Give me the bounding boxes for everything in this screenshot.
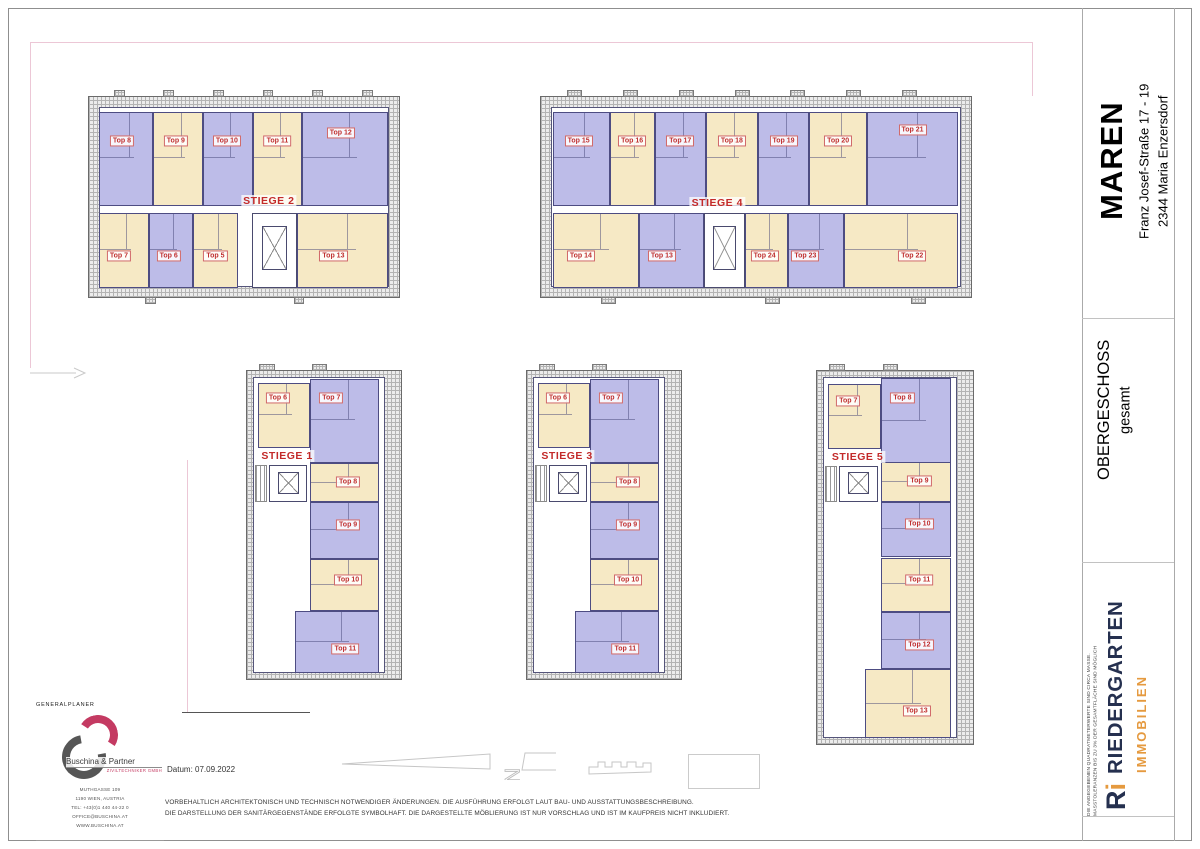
building-label: STIEGE 4 — [690, 197, 745, 209]
roof-stub — [829, 364, 845, 371]
unit-label: Top 16 — [618, 135, 646, 146]
unit-label: Top 7 — [599, 392, 623, 403]
unit-label: Top 8 — [616, 476, 640, 487]
titleblock-divider-1 — [1082, 318, 1174, 319]
roof-stub — [163, 90, 174, 97]
unit-top-21: Top 21 — [867, 112, 958, 206]
unit-label: Top 10 — [213, 135, 241, 146]
drawing-sheet: N Top 8Top 9Top 10Top 11Top 12Top 7Top 6… — [0, 0, 1200, 849]
unit-top-6: Top 6 — [258, 383, 310, 448]
unit-top-8: Top 8 — [590, 463, 659, 502]
unit-top-6: Top 6 — [149, 213, 194, 288]
unit-label: Top 24 — [751, 251, 779, 262]
roof-stub — [567, 90, 582, 97]
unit-label: Top 21 — [898, 124, 926, 135]
unit-top-10: Top 10 — [590, 559, 659, 611]
unit-top-9: Top 9 — [590, 502, 659, 559]
planner-address: MUTHGASSE 109 1190 WIEN, AUSTRIA TEL: +4… — [44, 786, 156, 831]
unit-top-23: Top 23 — [788, 213, 844, 288]
unit-label: Top 19 — [769, 135, 797, 146]
roof-stub — [679, 90, 694, 97]
riedergarten-logo-mark-icon: Ri — [1101, 783, 1131, 810]
unit-top-24: Top 24 — [745, 213, 788, 288]
unit-label: Top 7 — [319, 392, 343, 403]
unit-top-7: Top 7 — [99, 213, 149, 288]
unit-top-20: Top 20 — [809, 112, 867, 206]
unit-label: Top 11 — [906, 575, 934, 586]
unit-label: Top 10 — [905, 519, 933, 530]
site-edge-segment — [182, 712, 310, 713]
size-tolerance-note: DIE ANGEGEBENEN QUADRATMETERWERTE SIND C… — [1087, 572, 1100, 816]
planner-company-subtitle: ZIVILTECHNIKER GMBH — [66, 768, 162, 773]
date-label: Datum: 07.09.2022 — [167, 765, 235, 774]
roof-stub — [213, 90, 224, 97]
disclaimer-line2: DIE DARSTELLUNG DER SANITÄRGEGENSTÄNDE E… — [165, 808, 729, 819]
planner-address-line3: TEL: +43(0)1 440 44-22 0 — [44, 804, 156, 813]
stair-core — [269, 465, 308, 502]
unit-top-6: Top 6 — [538, 383, 590, 448]
brand-subtitle: IMMOBILIEN — [1134, 675, 1149, 773]
brand-name: RIEDERGARTEN — [1104, 600, 1127, 774]
entrance-arrow-icon — [28, 362, 90, 384]
building-label: STIEGE 3 — [539, 450, 594, 462]
unit-label: Top 12 — [905, 639, 933, 650]
unit-top-9: Top 9 — [310, 502, 379, 559]
svg-text:N: N — [500, 768, 523, 780]
unit-top-11: Top 11 — [575, 611, 660, 673]
unit-label: Top 13 — [903, 705, 931, 716]
brand-sub-block: IMMOBILIEN — [1133, 570, 1153, 773]
titleblock-left-line — [1082, 8, 1083, 841]
unit-top-12: Top 12 — [881, 612, 951, 670]
unit-label: Top 14 — [567, 251, 595, 262]
stair-core — [549, 465, 588, 502]
planner-address-line5: WWW.BUSCHINA.AT — [44, 822, 156, 831]
site-boundary-right — [1032, 42, 1033, 96]
building-stiege-3: Top 6Top 7Top 8Top 9Top 10Top 11STIEGE 3 — [526, 370, 682, 680]
building-stiege-2: Top 8Top 9Top 10Top 11Top 12Top 7Top 6To… — [88, 96, 400, 298]
unit-label: Top 11 — [612, 644, 640, 655]
unit-label: Top 10 — [334, 574, 362, 585]
unit-top-5: Top 5 — [193, 213, 238, 288]
unit-top-16: Top 16 — [610, 112, 655, 206]
roof-stub — [911, 297, 926, 304]
unit-label: Top 8 — [890, 392, 914, 403]
unit-top-15: Top 15 — [553, 112, 610, 206]
generalplaner-block: GENERALPLANER Buschina & Partner ZIVILTE… — [36, 702, 164, 841]
floor-title: OBERGESCHOSS — [1094, 322, 1115, 498]
size-note-line2: MASSTOLERANZEN BIS ZU 3% DER GESAMTFLÄCH… — [1093, 572, 1099, 816]
planner-address-line2: 1190 WIEN, AUSTRIA — [44, 795, 156, 804]
disclaimer-text: VORBEHALTLICH ARCHITEKTONISCH UND TECHNI… — [165, 797, 729, 819]
unit-label: Top 18 — [718, 135, 746, 146]
floor-title-block: OBERGESCHOSS gesamt — [1094, 322, 1152, 498]
roof-stub — [623, 90, 638, 97]
unit-label: Top 12 — [327, 128, 355, 139]
unit-top-13: Top 13 — [297, 213, 388, 288]
site-boundary-mid — [187, 460, 188, 712]
unit-label: Top 20 — [824, 135, 852, 146]
unit-label: Top 9 — [616, 519, 640, 530]
roof-stub — [790, 90, 805, 97]
building-label: STIEGE 5 — [830, 451, 885, 463]
staircase — [255, 465, 267, 502]
unit-label: Top 11 — [332, 644, 360, 655]
roof-stub — [294, 297, 305, 304]
roof-stub — [259, 364, 274, 371]
roof-stub — [312, 90, 323, 97]
roof-stub — [846, 90, 861, 97]
building-label: STIEGE 1 — [259, 450, 314, 462]
building-label: STIEGE 2 — [241, 195, 296, 207]
roof-stub — [883, 364, 899, 371]
unit-label: Top 6 — [157, 251, 181, 262]
unit-top-22: Top 22 — [844, 213, 958, 288]
unit-top-9: Top 9 — [153, 112, 203, 206]
roof-stub — [902, 90, 917, 97]
titleblock-right-line — [1174, 8, 1175, 841]
stair-core — [252, 213, 297, 288]
project-title-block: MAREN Franz Josef-Straße 17 - 19 2344 Ma… — [1096, 30, 1174, 292]
site-boundary-top — [30, 42, 1032, 43]
unit-label: Top 7 — [107, 251, 131, 262]
unit-label: Top 13 — [648, 251, 676, 262]
roof-stub — [765, 297, 780, 304]
unit-top-7: Top 7 — [310, 379, 379, 464]
titleblock-divider-2 — [1082, 562, 1174, 563]
unit-label: Top 13 — [319, 251, 347, 262]
building-stiege-4: Top 15Top 16Top 17Top 18Top 19Top 20Top … — [540, 96, 972, 298]
unit-top-14: Top 14 — [553, 213, 639, 288]
roof-stub — [263, 90, 274, 97]
unit-label: Top 17 — [666, 135, 694, 146]
floor-subtitle: gesamt — [1115, 322, 1135, 498]
brand-logo: RiRIEDERGARTEN — [1101, 570, 1137, 810]
unit-label: Top 11 — [264, 135, 292, 146]
unit-top-8: Top 8 — [881, 378, 951, 464]
staircase — [535, 465, 547, 502]
building-stiege-5: Top 7Top 8Top 9Top 10Top 11Top 12Top 13S… — [816, 370, 974, 745]
unit-top-7: Top 7 — [828, 384, 881, 449]
roof-stub — [362, 90, 373, 97]
planner-address-line1: MUTHGASSE 109 — [44, 786, 156, 795]
site-outline-rect — [688, 754, 760, 789]
unit-label: Top 9 — [164, 135, 188, 146]
unit-label: Top 9 — [336, 519, 360, 530]
unit-label: Top 6 — [266, 393, 290, 404]
unit-top-17: Top 17 — [655, 112, 707, 206]
building-stiege-1: Top 6Top 7Top 8Top 9Top 10Top 11STIEGE 1 — [246, 370, 402, 680]
project-address-line2: 2344 Maria Enzersdorf — [1154, 30, 1173, 292]
unit-top-12: Top 12 — [302, 112, 387, 206]
unit-top-11: Top 11 — [881, 558, 951, 612]
building-footprint-icon — [585, 752, 657, 780]
project-address-line1: Franz Josef-Straße 17 - 19 — [1136, 30, 1155, 292]
planner-company-name: Buschina & Partner — [66, 757, 162, 768]
titleblock-divider-3 — [1082, 816, 1174, 817]
roof-stub — [114, 90, 125, 97]
unit-top-7: Top 7 — [590, 379, 659, 464]
unit-top-19: Top 19 — [758, 112, 810, 206]
unit-label: Top 10 — [614, 574, 642, 585]
unit-top-10: Top 10 — [881, 502, 951, 558]
project-name: MAREN — [1096, 30, 1129, 292]
unit-top-10: Top 10 — [203, 112, 253, 206]
stair-core — [704, 213, 746, 288]
unit-label: Top 6 — [546, 393, 570, 404]
unit-label: Top 5 — [203, 251, 227, 262]
unit-label: Top 9 — [907, 476, 931, 487]
roof-stub — [312, 364, 327, 371]
unit-label: Top 15 — [565, 135, 593, 146]
roof-stub — [601, 297, 616, 304]
roof-stub — [539, 364, 554, 371]
unit-top-9: Top 9 — [881, 462, 951, 501]
unit-top-11: Top 11 — [253, 112, 303, 206]
unit-top-18: Top 18 — [706, 112, 758, 206]
unit-label: Top 8 — [110, 135, 134, 146]
unit-label: Top 22 — [898, 251, 926, 262]
roof-stub — [145, 297, 156, 304]
unit-top-8: Top 8 — [99, 112, 154, 206]
roof-stub — [735, 90, 750, 97]
stair-core — [839, 466, 878, 501]
unit-top-10: Top 10 — [310, 559, 379, 611]
unit-top-11: Top 11 — [295, 611, 380, 673]
unit-top-8: Top 8 — [310, 463, 379, 502]
north-arrow-icon: N — [338, 744, 556, 780]
site-boundary-left — [30, 42, 31, 368]
planner-address-line4: OFFICE@BUSCHINA.AT — [44, 813, 156, 822]
unit-label: Top 7 — [836, 395, 860, 406]
unit-top-13: Top 13 — [865, 669, 951, 738]
unit-top-13: Top 13 — [639, 213, 704, 288]
disclaimer-line1: VORBEHALTLICH ARCHITEKTONISCH UND TECHNI… — [165, 797, 729, 808]
unit-label: Top 23 — [791, 251, 819, 262]
roof-stub — [592, 364, 607, 371]
unit-label: Top 8 — [336, 476, 360, 487]
generalplaner-heading: GENERALPLANER — [36, 702, 95, 708]
staircase — [825, 466, 837, 501]
